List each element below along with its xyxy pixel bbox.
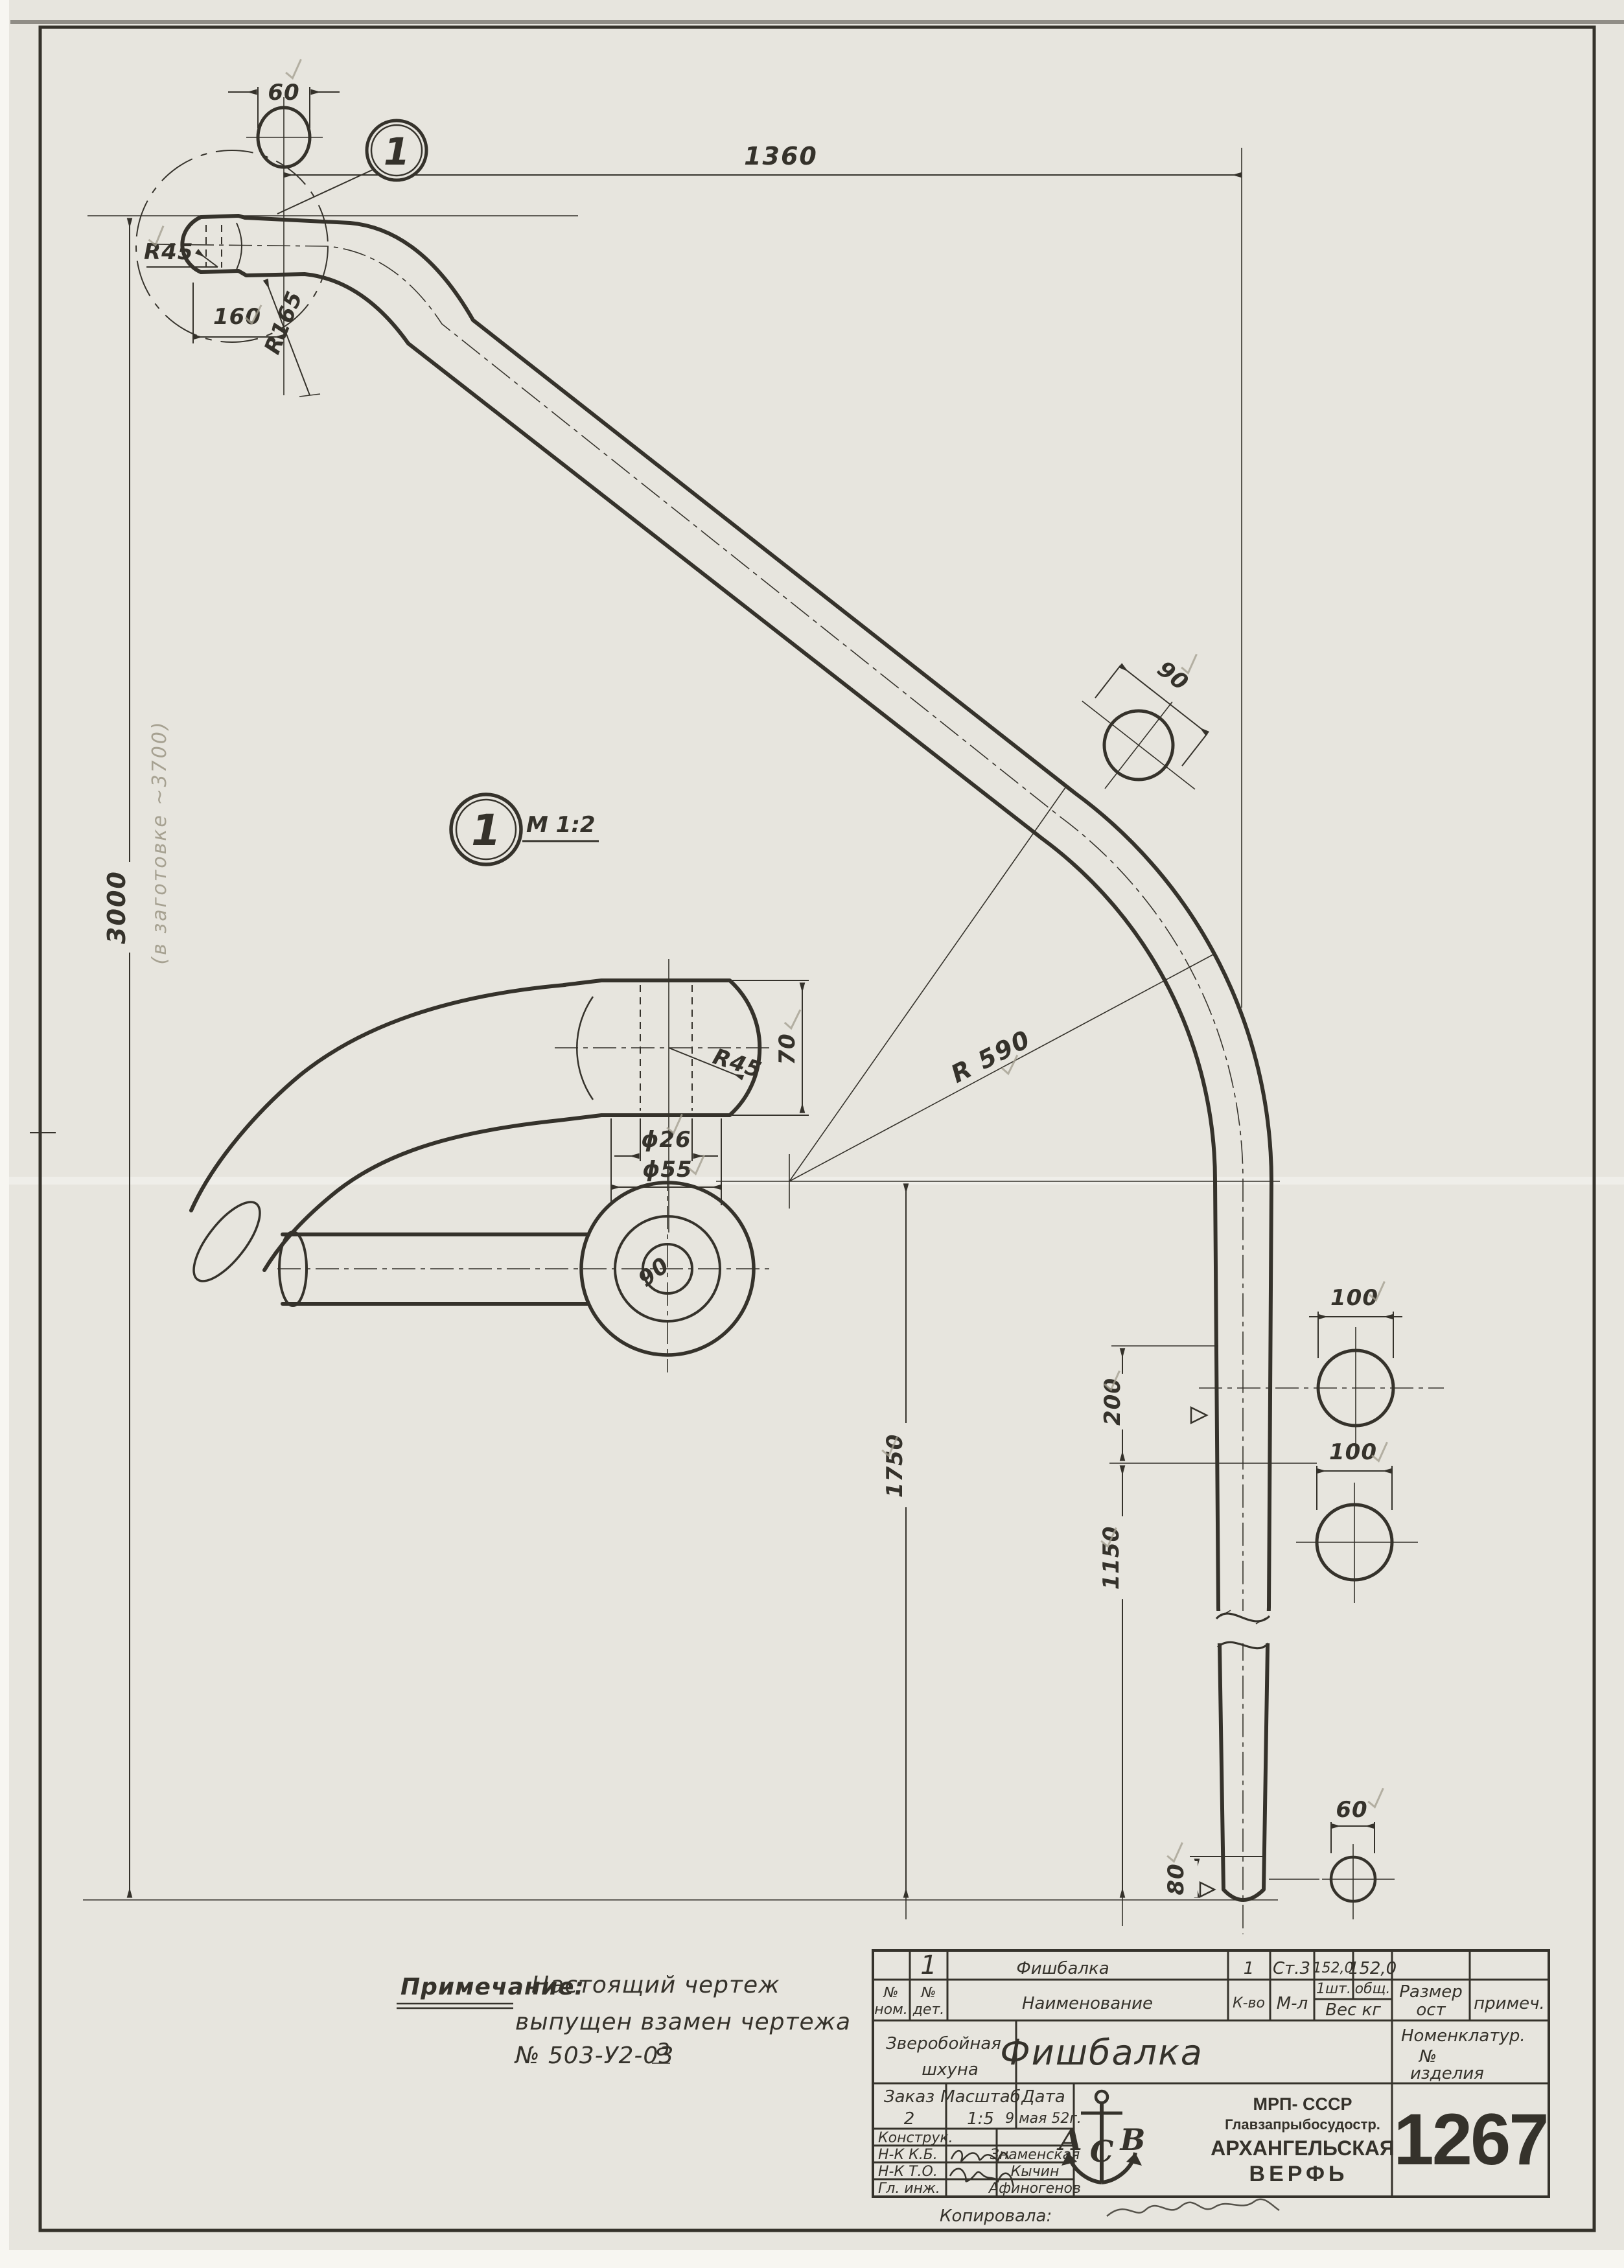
project-line1: Зверобойная [886,2034,1001,2054]
detail-scale-label: М 1:2 [526,812,596,838]
dim-text-60-tip: 60 [1336,1797,1367,1823]
note-line2: выпущен взамен чертежа [515,2009,851,2035]
hdr-det-1: № [921,1985,936,2001]
shaft-break-symbol [1212,1610,1275,1649]
fold-crease [9,1177,1624,1185]
dim-text-1150: 1150 [1098,1526,1124,1590]
sig-name-2: Кычин [1011,2164,1060,2180]
hdr-per-piece: 1шт. [1316,1981,1351,1997]
hdr-pos-1: № [883,1985,899,2001]
dim-80: 80 [1163,1859,1198,1897]
org-line2: Главзапрыбосудостр. [1225,2116,1380,2133]
sig-label-3: Гл. инж. [878,2181,940,2197]
dim-text-160: 160 [213,304,261,330]
part-weight-each: 152,0 [1313,1960,1354,1976]
dim-text-100-upper: 100 [1330,1285,1378,1311]
hdr-weight: Вес кг [1325,2000,1381,2020]
hdr-name: Наименование [1022,1994,1153,2013]
drawing-title: Фишбалка [1000,2032,1203,2073]
note-line3-sup: а [656,2035,671,2061]
blueprint-sheet: 60 160 1360 3000 R45 R165 R 590 [0,0,1624,2268]
scale-value: 1:5 [967,2109,994,2129]
sig-label-2: Н-К Т.О. [878,2164,938,2180]
dim-text-r45-main: R45 [144,239,194,265]
logo-letter-c: С [1090,2134,1114,2169]
note-line3: № 503-У2-03 [514,2042,674,2069]
drawing-number: 1267 [1393,2099,1547,2180]
dim-text-1360: 1360 [744,142,818,170]
drawing-canvas: 60 160 1360 3000 R45 R165 R 590 [0,0,1624,2268]
balloon-number-detail: 1 [471,805,501,855]
part-weight-total: 152,0 [1349,1959,1397,1978]
nomenclature-1: Номенклатур. [1401,2026,1525,2046]
org-line4: ВЕРФЬ [1249,2162,1349,2186]
hdr-qty: К-во [1233,1995,1265,2011]
part-det-no: 1 [920,1950,936,1980]
scale-label: Масштаб [940,2087,1021,2107]
project-line2: шхуна [922,2060,979,2079]
hdr-size-1: Размер [1399,1982,1463,2002]
hdr-det-2: дет. [912,2002,945,2018]
date-label: Дата [1021,2087,1065,2107]
org-line1: МРП- СССР [1253,2094,1352,2114]
pencil-annotation: (в заготовке ~3700) [148,720,171,964]
hdr-material: М-л [1277,1994,1308,2013]
hdr-size-2: ост [1416,2000,1446,2020]
hdr-remark: примеч. [1474,1994,1545,2013]
balloon-number-top: 1 [384,130,410,174]
copied-label: Копировала: [940,2206,1052,2226]
part-name: Фишбалка [1016,1959,1109,1978]
dim-text-3000: 3000 [102,870,131,944]
sig-name-3: Афиногенов [988,2181,1081,2197]
hdr-pos-2: ном. [874,2002,907,2018]
nomenclature-3: изделия [1410,2064,1484,2083]
dim-text-70: 70 [774,1033,800,1065]
part-qty: 1 [1244,1959,1255,1978]
hdr-total: общ. [1355,1981,1391,1997]
sig-label-1: Н-К К.Б. [878,2147,938,2163]
sig-name-1: Знаменская [990,2147,1080,2163]
dim-text-f26: ϕ26 [641,1127,691,1153]
order-label: Заказ [884,2087,934,2107]
sig-label-0: Конструк. [878,2130,953,2146]
logo-letter-b: В [1119,2122,1146,2157]
part-material: Ст.3 [1273,1959,1310,1978]
dim-text-100-lower: 100 [1329,1439,1377,1465]
dim-text-60-top: 60 [268,80,299,106]
order-value: 2 [904,2109,915,2129]
note-line1: Настоящий чертеж [531,1972,780,1998]
org-line3: АРХАНГЕЛЬСКАЯ [1211,2136,1395,2160]
dim-text-80: 80 [1163,1863,1189,1895]
